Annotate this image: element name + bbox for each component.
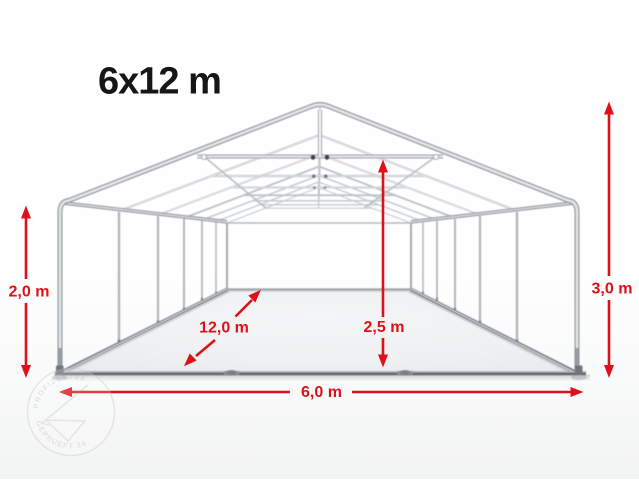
svg-text:6,0 m: 6,0 m [301,384,342,401]
svg-text:2,5 m: 2,5 m [364,319,405,336]
svg-text:3,0 m: 3,0 m [592,281,633,298]
svg-text:12,0 m: 12,0 m [199,320,249,337]
svg-text:6x12 m: 6x12 m [98,61,221,103]
svg-text:2,0 m: 2,0 m [9,284,50,301]
